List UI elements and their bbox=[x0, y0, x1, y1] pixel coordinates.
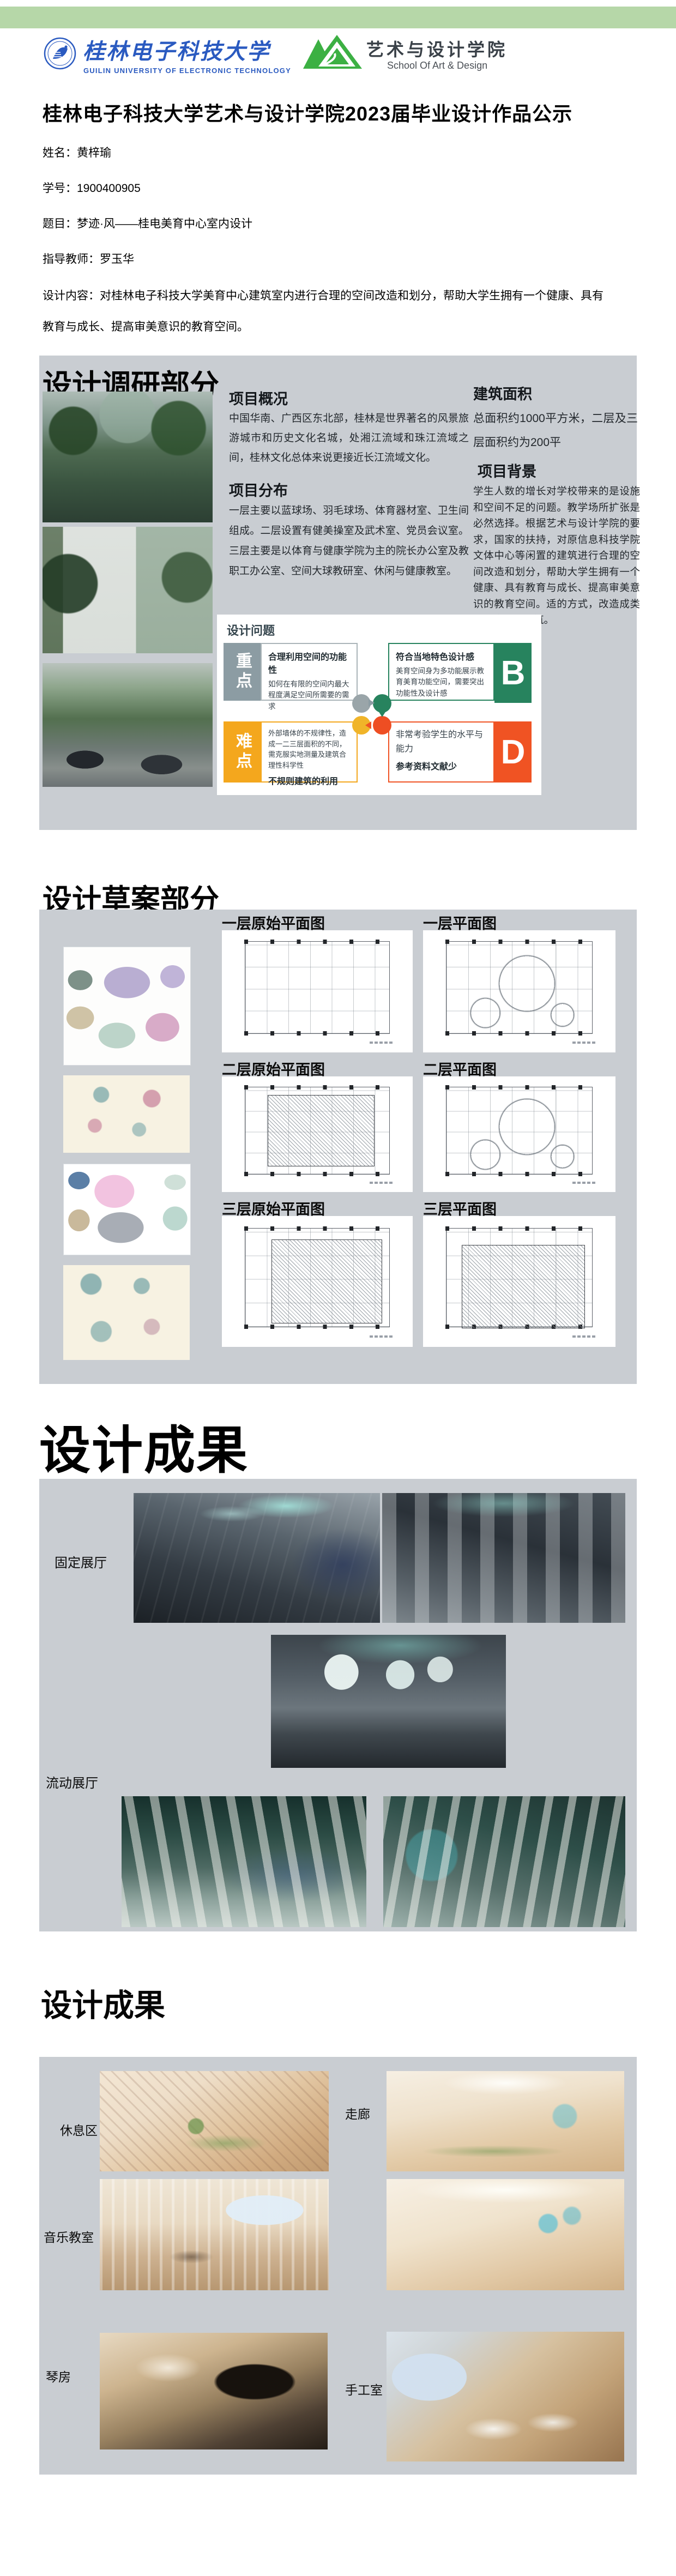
fixed-hall-label: 固定展厅 bbox=[55, 1552, 107, 1571]
problem-box-irregular: 外部墙体的不规律性，造成一二三层面积的不同，需克服实地测量及建筑合理性科学性 不… bbox=[261, 721, 358, 783]
problem-body: 如何在有限的空间内最大程度满足空间所需要的需求 bbox=[268, 679, 350, 712]
overview-body: 中国华南、广西区东北部，桂林是世界著名的风景旅游城市和历史文化名城，处湘江流域和… bbox=[229, 409, 469, 468]
problem-box-skill: 非常考验学生的水平与能力 参考资料文献少 bbox=[388, 721, 494, 783]
music-room-render bbox=[100, 2179, 329, 2290]
university-name-en: GUILIN UNIVERSITY OF ELECTRONIC TECHNOLO… bbox=[83, 67, 291, 75]
problem-title: 参考资料文献少 bbox=[396, 759, 487, 772]
site-photo-street bbox=[43, 663, 213, 787]
craft-room-render bbox=[387, 2332, 624, 2461]
mobile-hall-render-2 bbox=[383, 1796, 625, 1927]
area-body: 总面积约1000平方米，二层及三层面积约为200平 bbox=[473, 407, 638, 455]
info-label: 姓名： bbox=[43, 147, 77, 159]
fixed-hall-render-1 bbox=[134, 1493, 380, 1623]
site-photo-entrance bbox=[43, 392, 213, 522]
background-body: 学生人数的增长对学校带来的是设施和空间不足的问题。教学场所扩张是必然选择。根据艺… bbox=[473, 483, 640, 628]
plan-caption-mark bbox=[370, 1182, 394, 1184]
rest-area-label: 休息区 bbox=[60, 2120, 98, 2139]
craft-room-label: 手工室 bbox=[345, 2380, 383, 2398]
problem-title: 不规则建筑的利用 bbox=[268, 774, 350, 787]
info-row-content: 设计内容：对桂林电子科技大学美育中心建筑室内进行合理的空间改造和划分，帮助大学生… bbox=[43, 280, 604, 342]
plan-caption-mark bbox=[370, 1042, 394, 1044]
plan-hatched-area bbox=[268, 1095, 375, 1166]
area-heading: 建筑面积 bbox=[473, 382, 532, 404]
problem-title: 合理利用空间的功能性 bbox=[268, 649, 350, 676]
mindmap-sketch-1 bbox=[63, 1075, 190, 1153]
floor-plan-2f-original bbox=[222, 1076, 413, 1192]
results-exhibition-title: 设计成果 bbox=[39, 1409, 249, 1483]
piano-room-label: 琴房 bbox=[46, 2367, 71, 2385]
arrow-right-icon bbox=[369, 699, 375, 707]
music-room-label: 音乐教室 bbox=[44, 2227, 94, 2246]
key-point-block: 重点 bbox=[224, 643, 261, 701]
problem-title: 符合当地特色设计感 bbox=[396, 649, 487, 663]
info-row-topic: 题目：梦迹·风——桂电美育中心室内设计 bbox=[43, 208, 252, 239]
info-value: 黄梓瑜 bbox=[77, 147, 111, 159]
problems-heading: 设计问题 bbox=[227, 621, 275, 639]
info-label: 设计内容： bbox=[43, 290, 100, 302]
arrow-left-icon bbox=[365, 721, 371, 729]
mobile-hall-label: 流动展厅 bbox=[46, 1772, 98, 1791]
difficulty-block: 难点 bbox=[224, 721, 261, 783]
school-logo-icon bbox=[303, 34, 363, 73]
bubble-diagram-sketch-1 bbox=[63, 947, 191, 1066]
mindmap-sketch-2 bbox=[63, 1265, 190, 1360]
info-label: 指导教师： bbox=[43, 253, 100, 266]
corridor-label: 走廊 bbox=[345, 2104, 370, 2122]
school-name-en: School Of Art & Design bbox=[387, 60, 487, 71]
floor-plan-3f-original bbox=[222, 1216, 413, 1347]
node-green-icon bbox=[373, 694, 391, 713]
plan-hatched-area bbox=[462, 1245, 585, 1329]
distribution-body: 一层主要以蓝球场、羽毛球场、体育器材室、卫生间组成。二层设置有健美操室及武术室、… bbox=[229, 501, 469, 581]
results-rooms-title: 设计成果 bbox=[41, 1981, 165, 2025]
info-label: 学号： bbox=[43, 182, 77, 195]
design-problems-panel: 设计问题 重点 合理利用空间的功能性 如何在有限的空间内最大程度满足空间所需要的… bbox=[217, 615, 541, 795]
plan-hatched-area bbox=[271, 1239, 382, 1323]
background-heading: 项目背景 bbox=[478, 460, 536, 481]
node-red-icon bbox=[373, 716, 391, 735]
problem-box-function: 合理利用空间的功能性 如何在有限的空间内最大程度满足空间所需要的需求 bbox=[261, 643, 358, 701]
plan-caption-mark bbox=[572, 1182, 596, 1184]
overview-heading: 项目概况 bbox=[229, 387, 288, 408]
piano-room-render bbox=[100, 2333, 328, 2449]
info-value: 罗玉华 bbox=[100, 253, 134, 266]
plan-caption-mark bbox=[370, 1335, 394, 1338]
problem-box-local-style: 符合当地特色设计感 美育空间身为多功能展示教育美育功能空间，需要突出功能性及设计… bbox=[388, 643, 494, 701]
floor-plan-1f bbox=[423, 930, 615, 1052]
site-photo-building bbox=[43, 527, 213, 653]
poster-title: 桂林电子科技大学艺术与设计学院2023届毕业设计作品公示 bbox=[43, 98, 572, 127]
fixed-hall-render-3 bbox=[271, 1635, 506, 1768]
info-label: 题目： bbox=[43, 218, 77, 230]
badge-d: D bbox=[494, 721, 532, 783]
distribution-heading: 项目分布 bbox=[229, 479, 288, 500]
info-row-name: 姓名：黄梓瑜 bbox=[43, 137, 111, 168]
rest-area-render bbox=[100, 2071, 329, 2171]
problem-body: 非常考验学生的水平与能力 bbox=[396, 728, 487, 756]
node-gray-icon bbox=[352, 694, 371, 713]
plan-caption-mark bbox=[572, 1335, 596, 1338]
info-row-advisor: 指导教师：罗玉华 bbox=[43, 244, 134, 275]
problem-body: 美育空间身为多功能展示教育美育功能空间，需要突出功能性及设计感 bbox=[396, 666, 487, 699]
plan-drawing bbox=[245, 941, 390, 1034]
info-value: 对桂林电子科技大学美育中心建筑室内进行合理的空间改造和划分，帮助大学生拥有一个健… bbox=[43, 290, 603, 333]
plan-caption-mark bbox=[572, 1042, 596, 1044]
info-value: 梦迹·风——桂电美育中心室内设计 bbox=[77, 218, 252, 230]
header-green-bar bbox=[0, 7, 676, 28]
graduation-design-poster: 桂林电子科技大学 GUILIN UNIVERSITY OF ELECTRONIC… bbox=[0, 0, 676, 2576]
corridor-render bbox=[387, 2071, 624, 2171]
bubble-diagram-sketch-2 bbox=[63, 1164, 191, 1255]
info-row-id: 学号：1900400905 bbox=[43, 173, 141, 204]
plan-curved-walls bbox=[442, 942, 596, 1040]
floor-plan-3f bbox=[423, 1216, 615, 1347]
mobile-hall-render-1 bbox=[122, 1796, 366, 1927]
floor-plan-1f-original bbox=[222, 930, 413, 1052]
floor-plan-2f bbox=[423, 1076, 615, 1192]
arrow-down-icon bbox=[378, 711, 386, 717]
school-name-cn: 艺术与设计学院 bbox=[366, 36, 508, 61]
info-value: 1900400905 bbox=[77, 182, 141, 195]
badge-b: B bbox=[494, 643, 532, 703]
plan-curved-walls bbox=[442, 1088, 596, 1181]
problem-body: 外部墙体的不规律性，造成一二三层面积的不同，需克服实地测量及建筑合理性科学性 bbox=[268, 728, 350, 771]
corridor-render-2 bbox=[387, 2179, 624, 2290]
university-emblem-icon bbox=[44, 37, 76, 70]
university-name-cn: 桂林电子科技大学 bbox=[83, 34, 270, 65]
fixed-hall-render-2 bbox=[382, 1493, 625, 1623]
